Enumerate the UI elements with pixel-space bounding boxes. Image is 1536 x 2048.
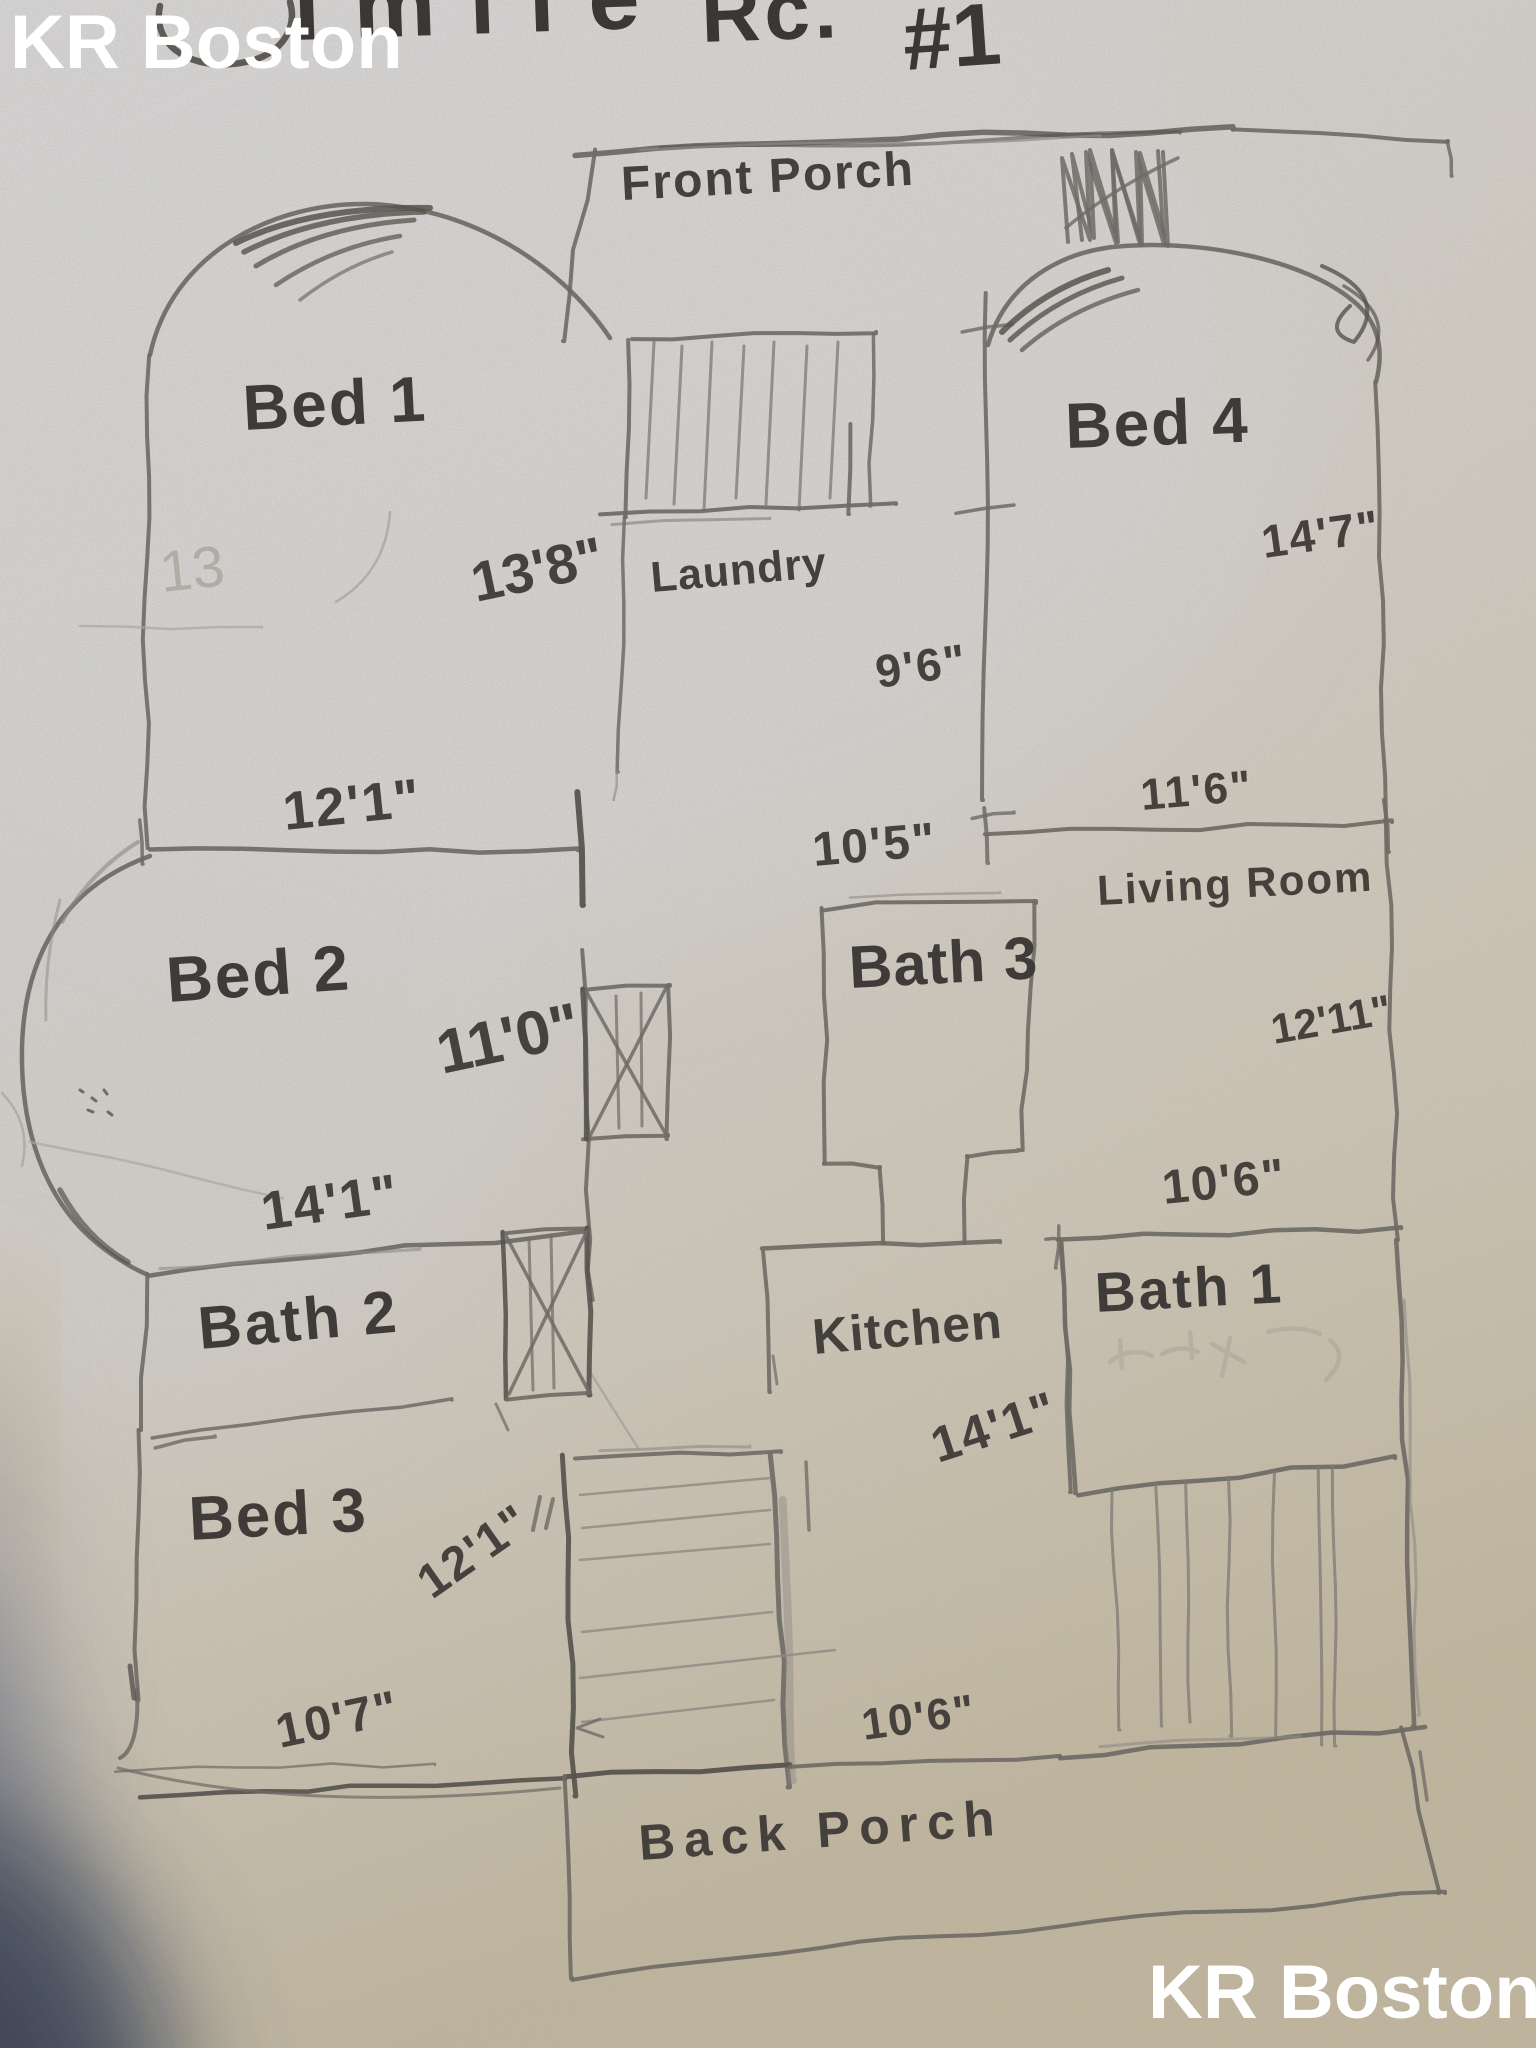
svg-text:Bath 1: Bath 1 bbox=[1093, 1251, 1285, 1324]
svg-text:Rc.: Rc. bbox=[699, 0, 842, 60]
svg-text:10'5": 10'5" bbox=[810, 813, 938, 877]
svg-text:11'6": 11'6" bbox=[1139, 761, 1255, 820]
svg-text:Bed 3: Bed 3 bbox=[187, 1476, 369, 1554]
svg-text:#1: #1 bbox=[899, 0, 1004, 89]
svg-text:Bath 3: Bath 3 bbox=[847, 924, 1040, 1001]
svg-text:KR Boston: KR Boston bbox=[10, 0, 403, 85]
svg-text:Bed 4: Bed 4 bbox=[1064, 384, 1251, 462]
svg-text:KR Boston: KR Boston bbox=[1148, 1950, 1536, 2035]
svg-text:13: 13 bbox=[157, 534, 228, 605]
svg-text:Bed 2: Bed 2 bbox=[164, 931, 353, 1016]
svg-text:Bed 1: Bed 1 bbox=[241, 362, 429, 444]
